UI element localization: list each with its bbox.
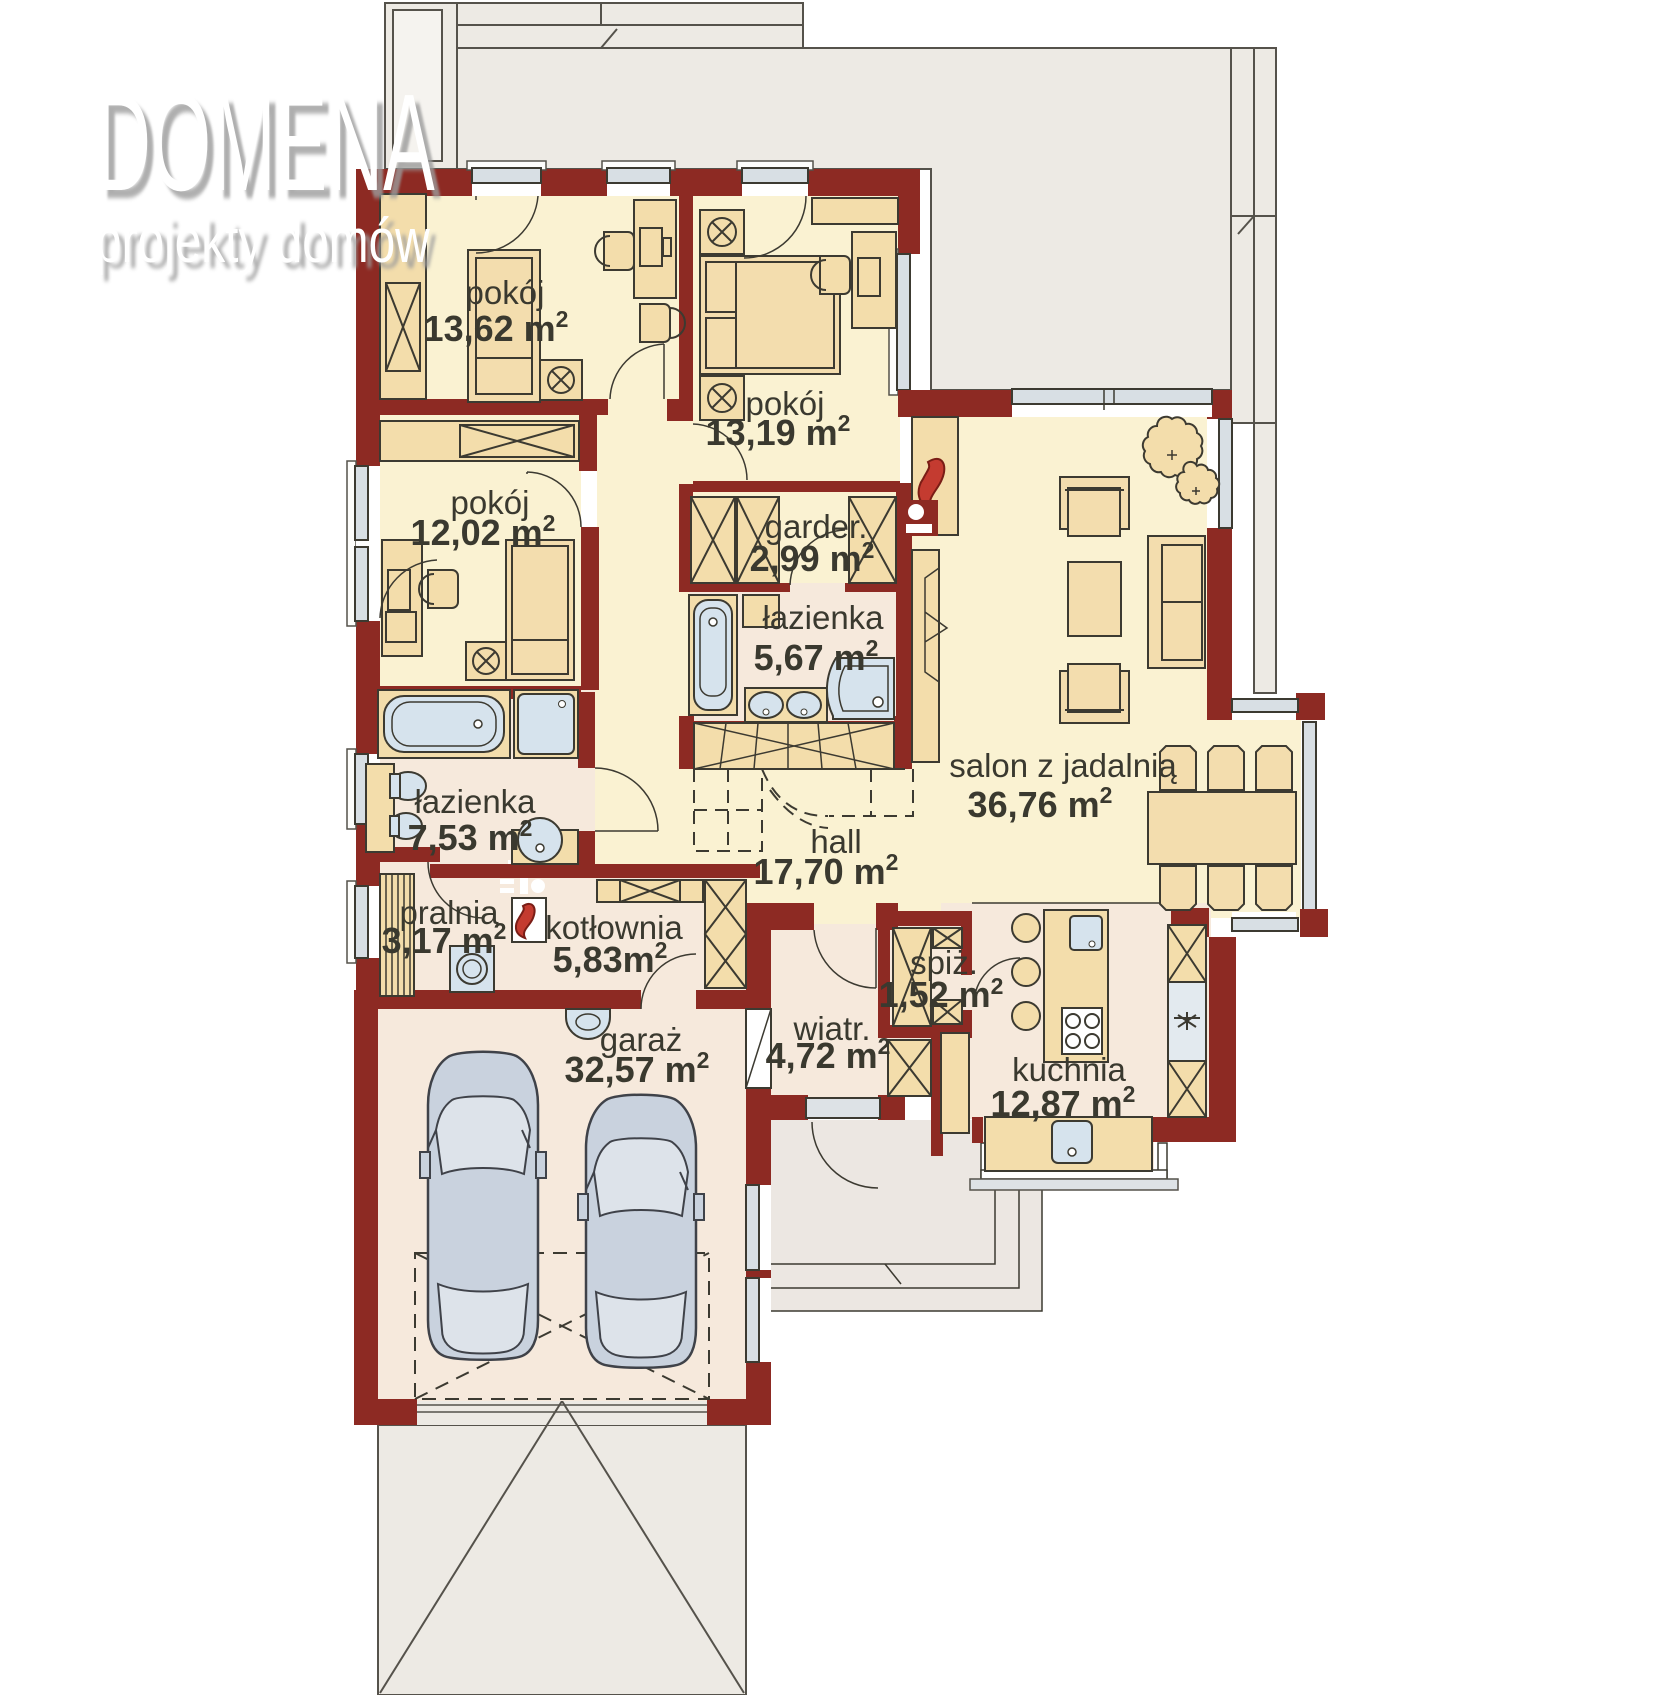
svg-text:7,53 m2: 7,53 m2 xyxy=(408,815,533,858)
svg-text:32,57 m2: 32,57 m2 xyxy=(565,1047,710,1090)
svg-text:łazienka: łazienka xyxy=(762,599,884,636)
svg-text:projekty domów: projekty domów xyxy=(95,206,431,275)
svg-text:36,76 m2: 36,76 m2 xyxy=(968,782,1113,825)
svg-text:pokój: pokój xyxy=(466,274,545,311)
svg-text:łazienka: łazienka xyxy=(414,783,536,820)
svg-text:17,70 m2: 17,70 m2 xyxy=(754,849,899,892)
svg-text:4,72 m2: 4,72 m2 xyxy=(766,1033,891,1076)
svg-text:1,52 m2: 1,52 m2 xyxy=(879,973,1004,1015)
svg-text:12,02 m2: 12,02 m2 xyxy=(411,510,556,553)
svg-text:2,99 m2: 2,99 m2 xyxy=(750,537,875,579)
svg-text:13,62 m2: 13,62 m2 xyxy=(424,306,569,349)
svg-text:DOMENA: DOMENA xyxy=(95,65,435,219)
svg-text:12,87 m2: 12,87 m2 xyxy=(991,1081,1136,1124)
svg-text:5,67 m2: 5,67 m2 xyxy=(754,635,879,678)
svg-text:salon z jadalnią: salon z jadalnią xyxy=(949,747,1177,784)
svg-text:5,83m2: 5,83m2 xyxy=(553,937,668,980)
svg-text:13,19 m2: 13,19 m2 xyxy=(706,410,851,453)
svg-text:3,17 m2: 3,17 m2 xyxy=(382,918,507,961)
